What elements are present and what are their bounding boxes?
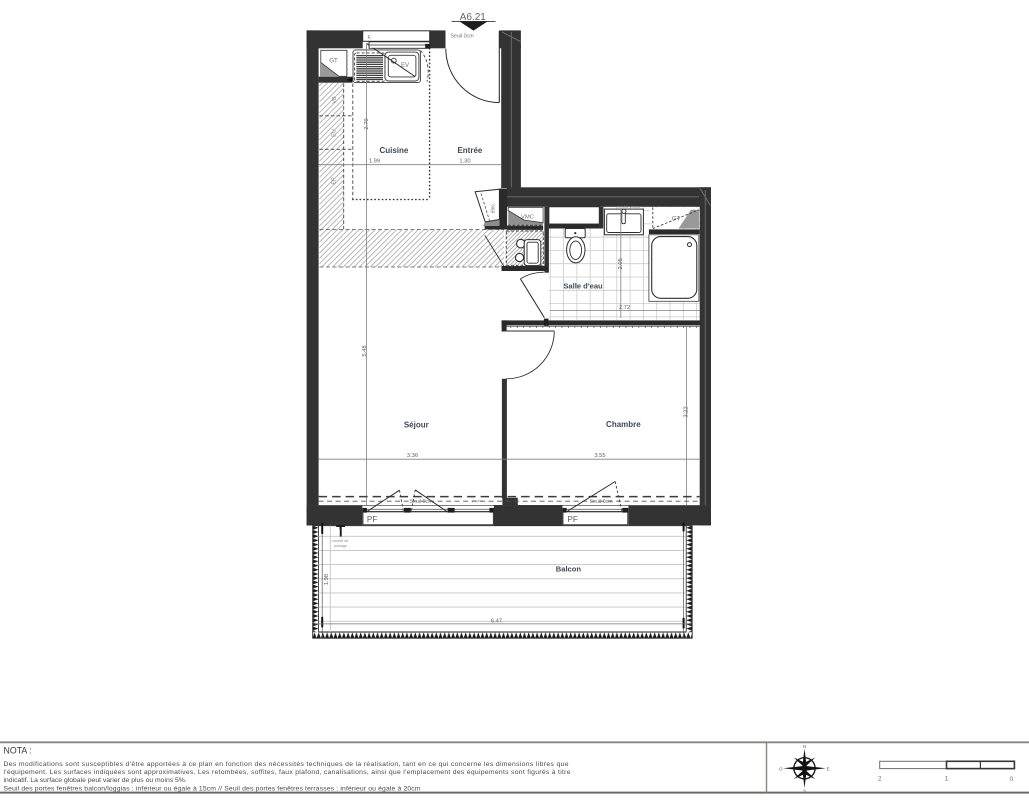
svg-text:3.55: 3.55 xyxy=(594,453,605,459)
svg-text:6.47: 6.47 xyxy=(491,618,502,624)
svg-text:3.36: 3.36 xyxy=(407,453,418,459)
svg-text:5.48: 5.48 xyxy=(362,345,368,356)
svg-text:EP: EP xyxy=(332,177,338,185)
svg-text:Entrée: Entrée xyxy=(457,146,482,155)
svg-text:Seuil 0cm: Seuil 0cm xyxy=(450,34,474,40)
svg-text:poutre: poutre xyxy=(472,499,482,503)
svg-text:GT: GT xyxy=(672,216,681,223)
svg-text:1.98: 1.98 xyxy=(324,574,330,585)
svg-text:2.72: 2.72 xyxy=(619,305,630,311)
svg-text:Seuil 0cm: Seuil 0cm xyxy=(409,499,433,505)
svg-text:S: S xyxy=(803,788,806,793)
svg-text:PF: PF xyxy=(567,515,577,524)
svg-text:GT: GT xyxy=(329,58,338,65)
svg-text:NOTA :: NOTA : xyxy=(4,746,32,756)
svg-text:N: N xyxy=(803,744,806,749)
svg-text:2: 2 xyxy=(878,776,882,783)
svg-text:3.22: 3.22 xyxy=(684,406,690,417)
svg-text:A6.21: A6.21 xyxy=(460,12,487,23)
svg-text:l'équipement. Les surfaces ind: l'équipement. Les surfaces indiquées son… xyxy=(4,769,571,776)
svg-text:indicatif. La surface globale: indicatif. La surface globale peut varie… xyxy=(4,777,187,784)
svg-text:1.99: 1.99 xyxy=(369,159,380,165)
svg-text:puisage: puisage xyxy=(334,544,347,548)
svg-text:VB: VB xyxy=(332,96,338,104)
svg-text:Seuil 0cm: Seuil 0cm xyxy=(589,499,613,505)
svg-text:Seuil des portes fenêtres balc: Seuil des portes fenêtres balcon/loggias… xyxy=(4,785,421,792)
svg-text:EU: EU xyxy=(332,129,338,137)
svg-text:Salle d'eau: Salle d'eau xyxy=(563,281,603,290)
svg-text:Cuisine: Cuisine xyxy=(379,146,408,155)
svg-text:O: O xyxy=(779,766,783,771)
svg-text:1: 1 xyxy=(945,776,949,783)
svg-text:VMC: VMC xyxy=(521,214,534,220)
svg-text:2.70: 2.70 xyxy=(364,118,370,129)
svg-text:Balcon: Balcon xyxy=(556,565,582,574)
svg-text:2.05: 2.05 xyxy=(618,258,624,269)
svg-text:élec.: élec. xyxy=(490,203,496,214)
svg-text:PF: PF xyxy=(367,515,377,524)
svg-text:1.30: 1.30 xyxy=(459,159,470,165)
svg-text:E: E xyxy=(827,766,830,771)
svg-text:F.: F. xyxy=(368,35,372,41)
svg-text:robinet de: robinet de xyxy=(332,539,349,543)
svg-text:meuble vasque: meuble vasque xyxy=(617,205,641,209)
svg-text:0: 0 xyxy=(1010,776,1014,783)
svg-text:Chambre: Chambre xyxy=(606,420,641,429)
svg-text:Des modifications sont suscept: Des modifications sont susceptibles d'êt… xyxy=(4,761,569,768)
svg-text:Séjour: Séjour xyxy=(404,420,429,429)
